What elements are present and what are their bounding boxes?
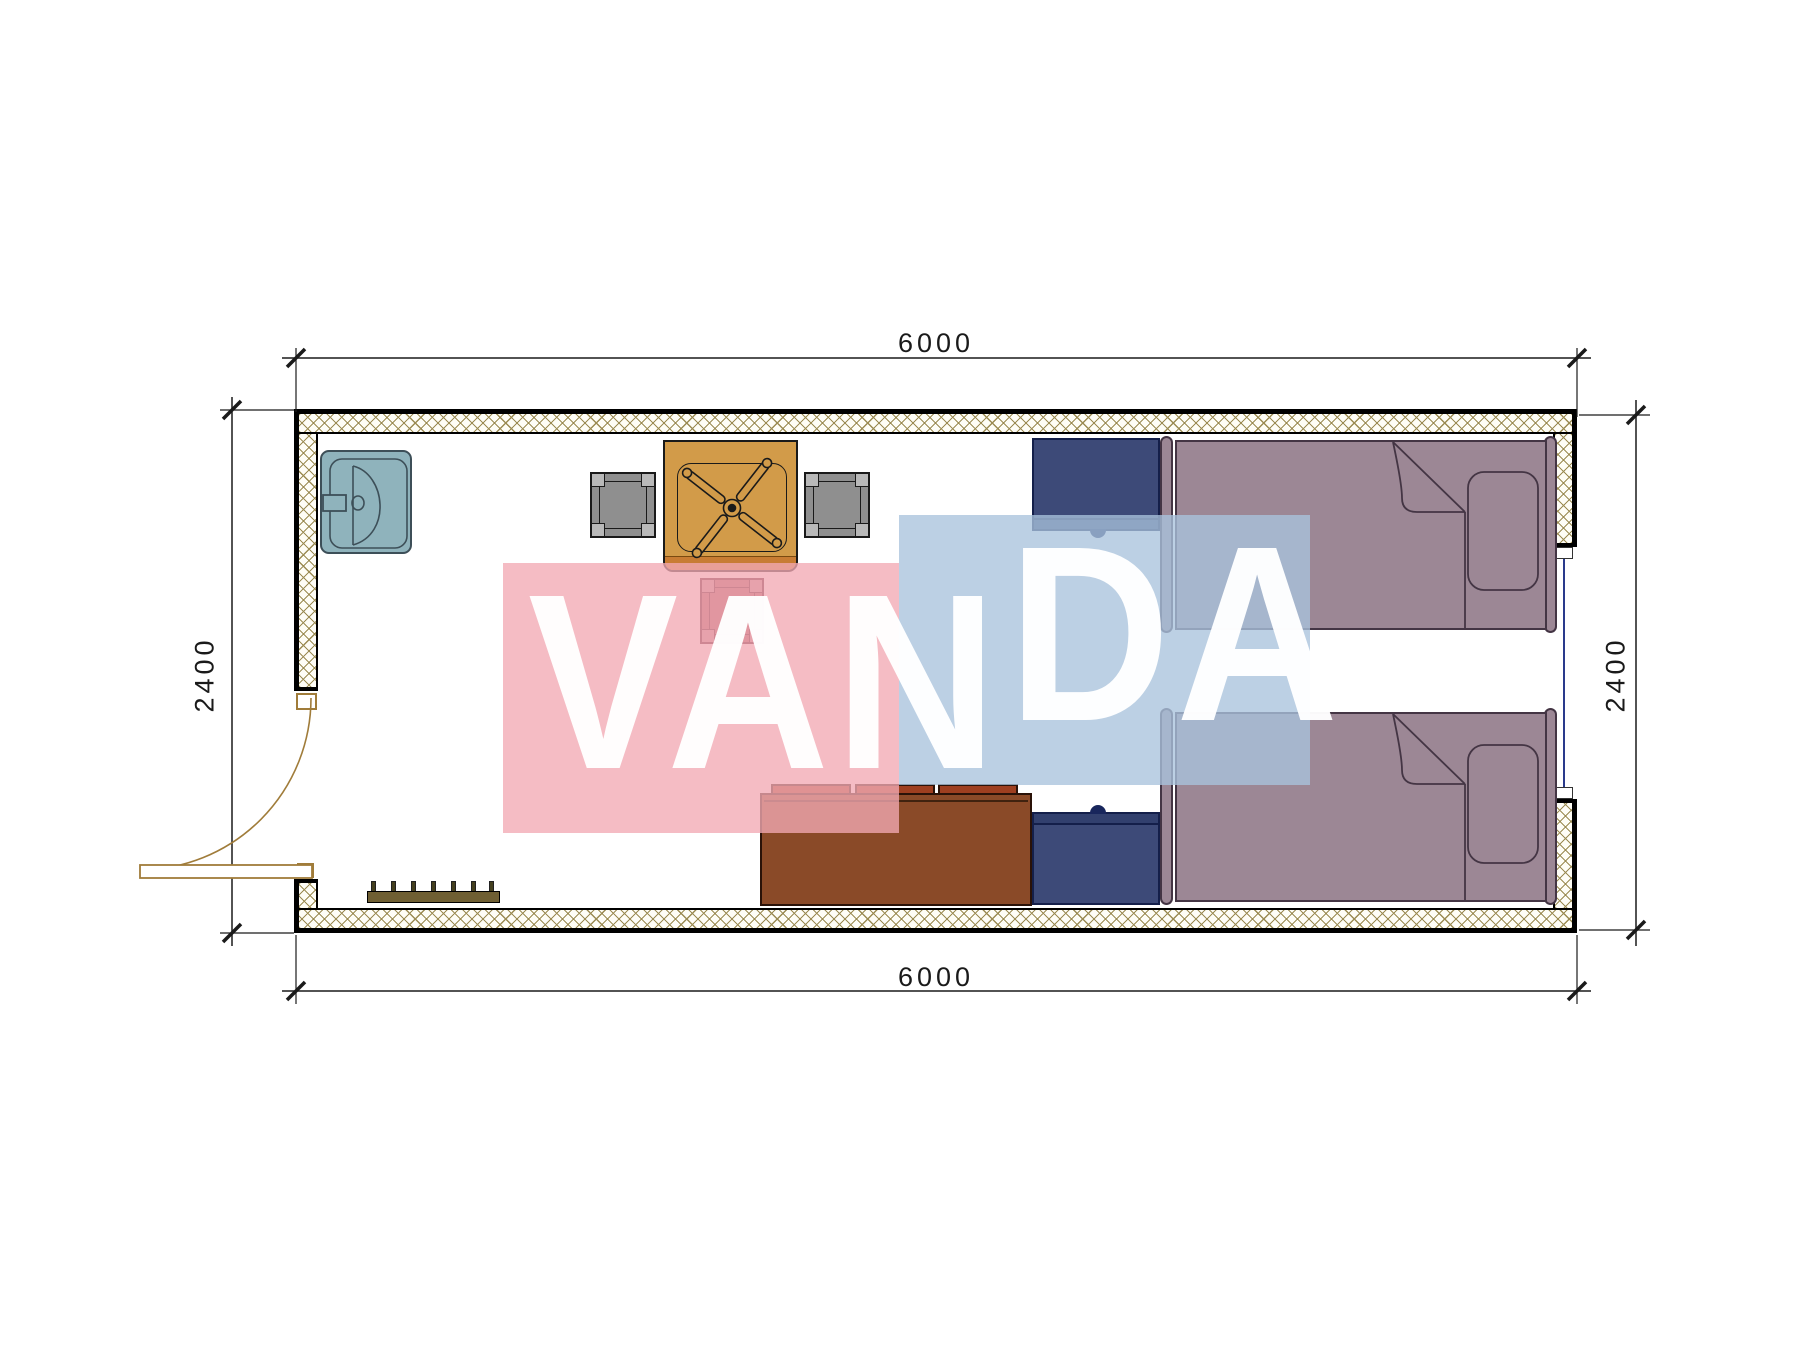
dim-label-right: 2400 (1601, 615, 1632, 735)
wall-top (294, 409, 1577, 434)
window-jamb-upper (1556, 547, 1573, 559)
coat-rack (367, 891, 500, 903)
stool-inner-frame (599, 481, 647, 529)
dim-label-top: 6000 (876, 328, 996, 359)
nightstand-handle-icon (1090, 805, 1106, 814)
floor-plan-canvas: 6000 6000 2400 2400 VAN DA (0, 0, 1800, 1350)
door-leaf (140, 865, 312, 878)
wall-bottom (294, 908, 1577, 933)
faucet-icon (323, 495, 346, 511)
stool-gray-right (804, 472, 870, 538)
door-jamb-top (296, 693, 317, 710)
sink (320, 450, 412, 554)
nightstand-bottom (1032, 812, 1160, 905)
nightstand-rail (1034, 814, 1158, 825)
wall-left-door-stub (294, 879, 318, 908)
wall-left (294, 434, 318, 691)
door-hinge-plate (297, 863, 314, 878)
sink-basin-icon (322, 452, 414, 556)
dim-left (220, 397, 294, 946)
watermark-text-van: VAN (528, 557, 1003, 807)
dim-label-bottom: 6000 (876, 962, 996, 993)
watermark-text-da: DA (1008, 509, 1344, 759)
door-swing-arc (140, 698, 311, 870)
dim-label-left: 2400 (190, 615, 221, 735)
stool-inner-frame (813, 481, 861, 529)
stool-gray-left (590, 472, 656, 538)
window-jamb-lower (1556, 787, 1573, 799)
